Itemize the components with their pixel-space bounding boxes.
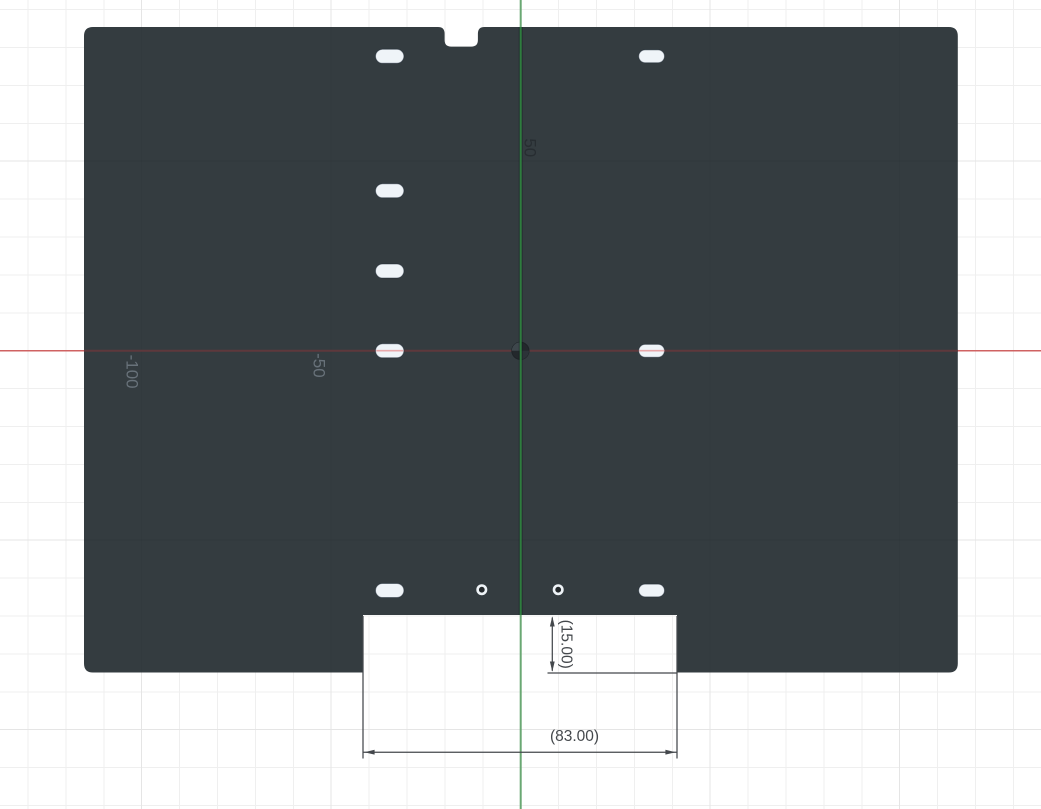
svg-text:(83.00): (83.00) (550, 728, 599, 745)
svg-text:(15.00): (15.00) (557, 620, 574, 669)
svg-text:50: 50 (520, 138, 539, 157)
svg-text:-50: -50 (309, 353, 328, 378)
svg-text:-100: -100 (122, 355, 141, 389)
